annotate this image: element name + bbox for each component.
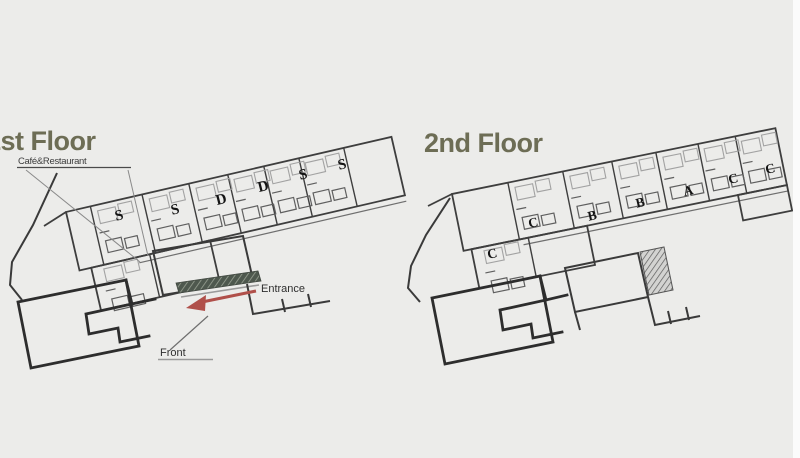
room-label-floor2-4: B: [634, 194, 646, 211]
room-label-floor2-3: B: [586, 207, 598, 224]
cafe-leader-line-2: [128, 170, 148, 256]
floor1-boundary-join: [44, 212, 66, 226]
room-label-floor2-6: C: [727, 170, 740, 187]
room-label-floor2-1: C: [486, 245, 499, 262]
room-label-floor1-1: S: [113, 207, 125, 225]
entrance-arrow-icon: [186, 295, 206, 311]
room-label-floor2-7: C: [764, 160, 777, 177]
floor2-corridor-line: [524, 191, 789, 245]
floor2-lobby-wall-lower: [575, 312, 580, 330]
front-label: Front: [160, 347, 186, 359]
floor2-lobby-outline: [565, 253, 648, 312]
floorplan-page: 1st Floor Café&Restaurant Entrance Front…: [0, 0, 800, 458]
room-label-floor1-3: D: [214, 191, 229, 209]
floor1-boundary-line: [10, 173, 57, 300]
right-edge-strip: [793, 0, 800, 458]
floorplan-diagram: 1st Floor Café&Restaurant Entrance Front…: [0, 0, 800, 458]
room-label-floor1-2: S: [169, 201, 181, 219]
cafe-restaurant-label: Café&Restaurant: [18, 156, 87, 167]
floor2-annex-link-wall: [546, 295, 567, 300]
floor1-approach-tick-1: [282, 299, 285, 312]
floor1-plan: 1st Floor Café&Restaurant Entrance Front…: [0, 126, 416, 368]
floor2-title: 2nd Floor: [424, 128, 543, 158]
floor1-annex-link-wall: [132, 299, 155, 304]
floor2-room-labels: C C B B A C C: [486, 160, 777, 262]
floor2-plan: 2nd Floor C C B B A C C: [408, 128, 796, 364]
floor1-wing: [66, 137, 416, 316]
floor2-approach-wall: [648, 297, 700, 325]
floor2-annex: [432, 247, 700, 364]
floor2-annex-zigzag-wall: [500, 276, 562, 338]
floor1-title: 1st Floor: [0, 126, 97, 156]
floor1-annex-room: [18, 280, 139, 368]
front-leader-line: [170, 316, 208, 350]
floor2-boundary-line: [408, 198, 450, 302]
room-label-floor2-2: C: [527, 214, 540, 231]
entrance-label: Entrance: [261, 283, 305, 295]
room-label-floor1-5: S: [297, 166, 309, 184]
